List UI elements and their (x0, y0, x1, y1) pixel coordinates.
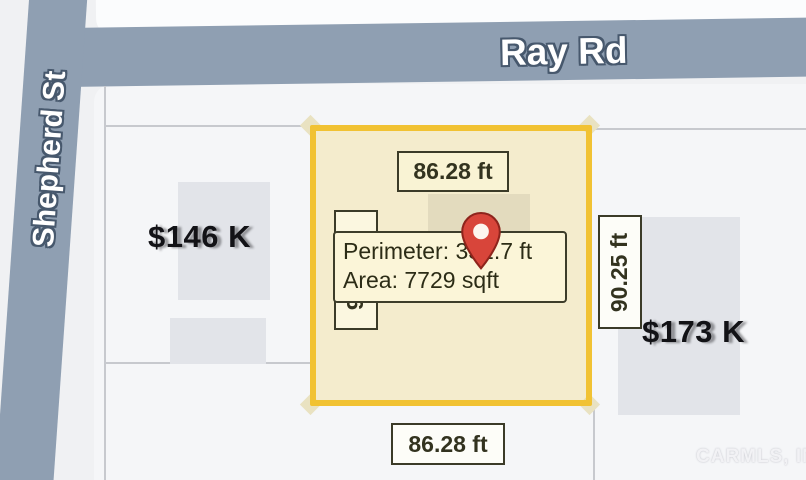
road-label-ray-rd: Ray Rd (500, 30, 628, 74)
listing-price-label[interactable]: $173 K (642, 314, 745, 350)
lot-line (104, 125, 312, 127)
dimension-label-right-text: 90.25 ft (607, 232, 634, 311)
building-footprint (170, 318, 266, 364)
lot-line (592, 128, 806, 130)
map-pin-icon[interactable] (460, 212, 502, 270)
dimension-label-top: 86.28 ft (397, 151, 509, 192)
lot-line (593, 406, 595, 480)
tooltip-perimeter-line: Perimeter: 351.7 ft (343, 237, 557, 266)
dimension-label-top-text: 86.28 ft (413, 158, 492, 185)
tooltip-area-line: Area: 7729 sqft (343, 266, 557, 295)
lot-line (104, 86, 106, 480)
measurement-tooltip: Perimeter: 351.7 ft Area: 7729 sqft (333, 231, 567, 303)
map-canvas[interactable]: Ray Rd Shepherd St 90.25 ft 86.28 ft 90.… (0, 0, 806, 480)
listing-price-label[interactable]: $146 K (148, 219, 251, 255)
watermark-text: CARMLS, INC (696, 446, 806, 468)
dimension-label-bottom: 86.28 ft (391, 423, 505, 465)
dimension-label-bottom-text: 86.28 ft (408, 431, 487, 458)
road-ray-rd (30, 17, 806, 87)
dimension-label-right: 90.25 ft (598, 215, 642, 329)
